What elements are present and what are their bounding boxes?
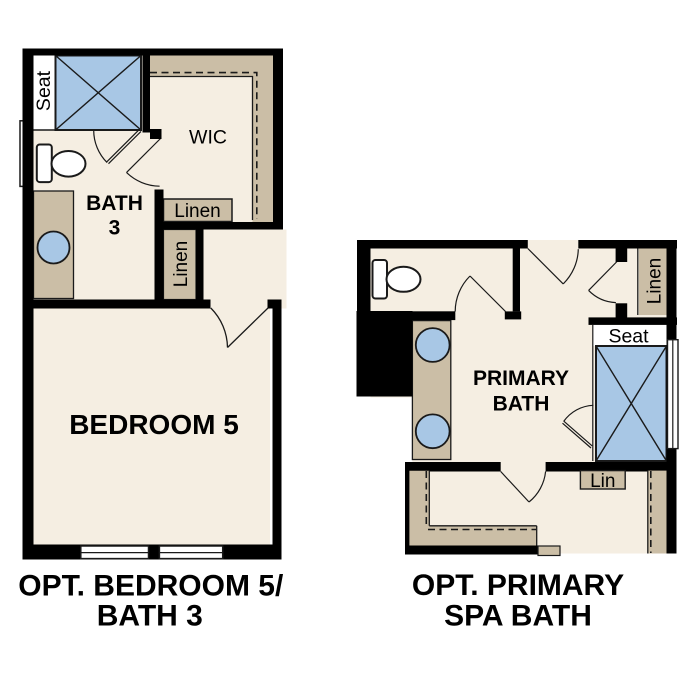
svg-text:Seat: Seat (33, 70, 55, 111)
svg-text:OPT. BEDROOM 5/: OPT. BEDROOM 5/ (18, 570, 284, 603)
svg-text:Linen: Linen (174, 201, 221, 222)
svg-text:BATH: BATH (493, 393, 550, 416)
svg-text:SPA BATH: SPA BATH (444, 600, 592, 633)
svg-text:BATH 3: BATH 3 (97, 600, 203, 633)
svg-text:BATH: BATH (86, 192, 143, 215)
svg-text:Linen: Linen (645, 258, 666, 305)
svg-text:Seat: Seat (608, 326, 649, 348)
svg-text:Linen: Linen (171, 241, 192, 288)
svg-text:Lin: Lin (590, 471, 615, 492)
svg-text:PRIMARY: PRIMARY (473, 367, 569, 390)
svg-text:BEDROOM 5: BEDROOM 5 (69, 409, 239, 440)
svg-text:WIC: WIC (189, 127, 227, 149)
svg-text:3: 3 (109, 217, 121, 240)
svg-text:OPT. PRIMARY: OPT. PRIMARY (412, 569, 624, 602)
